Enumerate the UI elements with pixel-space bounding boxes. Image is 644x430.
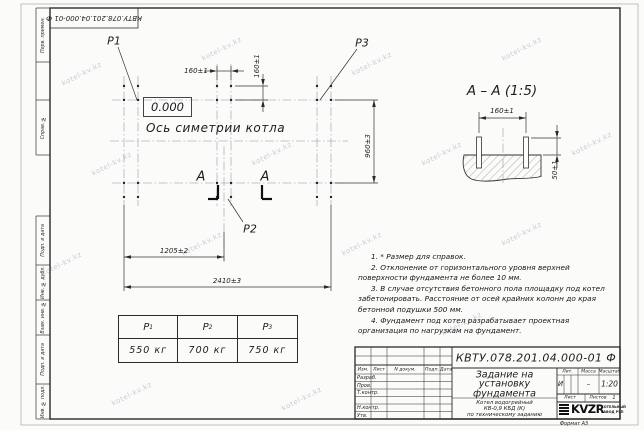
- col-doc: N докум.: [394, 367, 415, 372]
- load-table-header-p1: Р1: [119, 316, 178, 339]
- row-tcontrol: Т.контр.: [357, 390, 379, 396]
- kvzr-logo-icon: [559, 404, 569, 416]
- company-desc-line: ЗАВОД РЭП: [601, 410, 624, 414]
- col-list: Лист: [373, 367, 385, 372]
- note-1: 1. * Размер для справок.: [358, 252, 614, 263]
- margin-cell-sprav-n: Справ. №: [36, 100, 50, 155]
- company-logo-text: KVZR: [571, 402, 604, 416]
- col-date: Дата: [440, 367, 452, 372]
- margin-label: Инв. № подл.: [41, 385, 46, 418]
- note-3: 3. В случае отсутствия бетонного пола пл…: [358, 284, 614, 316]
- anchor-bolt: [524, 137, 529, 168]
- load-subscript: 1: [149, 324, 153, 331]
- plan-centerlines: [110, 64, 348, 262]
- scale-value: 1:20: [601, 379, 618, 388]
- note-text: Фундамент под котел разрабатывает проект…: [358, 316, 569, 336]
- level-mark-box: 0.000: [143, 97, 192, 117]
- section-letter-right: А: [261, 170, 270, 185]
- section-view: [463, 112, 561, 183]
- col-izm: Изм.: [358, 367, 369, 372]
- load-table: Р1 Р2 Р3 550 кг 700 кг 750 кг: [118, 315, 298, 363]
- row-checked: Пров.: [357, 383, 372, 389]
- load-point-p1-label: Р1: [107, 35, 121, 48]
- drawing-title-line: фундамента: [473, 388, 536, 399]
- margin-label: Инв. № дубл.: [41, 266, 46, 299]
- load-point-p2-label: Р2: [243, 223, 257, 236]
- section-letter-left: А: [197, 170, 206, 185]
- margin-label: Подп. и дата: [41, 224, 46, 257]
- load-value-p2: 700 кг: [178, 339, 237, 362]
- sheets-label: Листов: [589, 396, 606, 401]
- sheet-label: Лист: [564, 396, 576, 401]
- note-number: 1.: [371, 252, 378, 261]
- col-sign: Подп.: [425, 367, 439, 372]
- load-table-header-p3: Р3: [238, 316, 297, 339]
- section-dim-height: 50±1: [551, 160, 559, 179]
- technical-notes: 1. * Размер для справок. 2. Отклонение о…: [358, 252, 614, 337]
- dim-row-span-960: 960±3: [364, 134, 372, 158]
- load-table-header-p2: Р2: [178, 316, 237, 339]
- section-view-title: А – А (1:5): [467, 83, 537, 99]
- row-approved: Утв.: [357, 413, 368, 419]
- note-4: 4. Фундамент под котел разрабатывает про…: [358, 316, 614, 337]
- margin-label: Справ. №: [41, 116, 46, 139]
- margin-cell-vzam-inv: Взам. инв. №: [36, 300, 50, 335]
- drawing-linework: [0, 0, 644, 430]
- dim-full-width-2410: 2410±3: [213, 277, 241, 285]
- margin-cell-podp-data-2: Подп. и дата: [36, 335, 50, 384]
- scale-header: Масштаб: [599, 369, 621, 374]
- section-dim-bolts: 160±1: [490, 107, 514, 115]
- doc-number: КВТУ.078.201.04.000-01 Ф: [456, 351, 616, 364]
- format-label: Формат А3: [560, 421, 588, 427]
- load-subscript: 2: [209, 324, 213, 331]
- note-number: 3.: [371, 284, 378, 293]
- load-value-p3: 750 кг: [238, 339, 297, 362]
- note-text: Отклонение от горизонтального уровня вер…: [358, 263, 570, 283]
- margin-cell-inv-podl: Инв. № подл.: [36, 384, 50, 419]
- level-mark: 0.000: [151, 100, 184, 114]
- load-subscript: 3: [268, 324, 272, 331]
- drawing-sheet: { "watermark": "kotel-kv.kz", "margin": …: [0, 0, 644, 430]
- mass-value: –: [587, 380, 591, 388]
- row-developed: Разраб.: [357, 375, 377, 381]
- margin-label: Перв. примен.: [41, 17, 46, 53]
- lit-value: И: [558, 380, 563, 388]
- top-stamp-doc-number: КВТУ.078.201.04.000-01 Ф: [46, 14, 142, 22]
- boiler-symmetry-axis-label: Ось симетрии котла: [146, 121, 285, 135]
- lit-header: Лит.: [562, 369, 573, 374]
- note-number: 2.: [371, 263, 378, 272]
- note-2: 2. Отклонение от горизонтального уровня …: [358, 263, 614, 284]
- dim-bolt-spacing-y: 160±1: [253, 54, 261, 78]
- margin-label: Взам. инв. №: [41, 301, 46, 334]
- drawing-subtitle-line: по техническому заданию: [467, 412, 542, 418]
- margin-cell-podp-data-1: Подп. и дата: [36, 216, 50, 265]
- row-ncontrol: Н.контр.: [357, 405, 379, 411]
- note-text: * Размер для справок.: [380, 252, 465, 261]
- section-cut-marks: [208, 185, 272, 199]
- mass-header: Масса: [581, 369, 596, 374]
- margin-label: Подп. и дата: [41, 343, 46, 376]
- note-text: В случае отсутствия бетонного пола площа…: [358, 284, 605, 314]
- note-number: 4.: [371, 316, 378, 325]
- dim-bolt-spacing-x: 160±1: [184, 67, 208, 75]
- load-point-p3-label: Р3: [355, 37, 369, 50]
- company-desc-line: КОТЕЛЬНЫЙ: [601, 405, 626, 409]
- anchor-bolt: [477, 137, 482, 168]
- foundation-block-hatched: [463, 155, 541, 181]
- dim-half-width-1205: 1205±2: [160, 247, 188, 255]
- margin-cell-inv-dubl: Инв. № дубл.: [36, 265, 50, 300]
- load-value-p1: 550 кг: [119, 339, 178, 362]
- sheets-value: 1: [612, 395, 615, 401]
